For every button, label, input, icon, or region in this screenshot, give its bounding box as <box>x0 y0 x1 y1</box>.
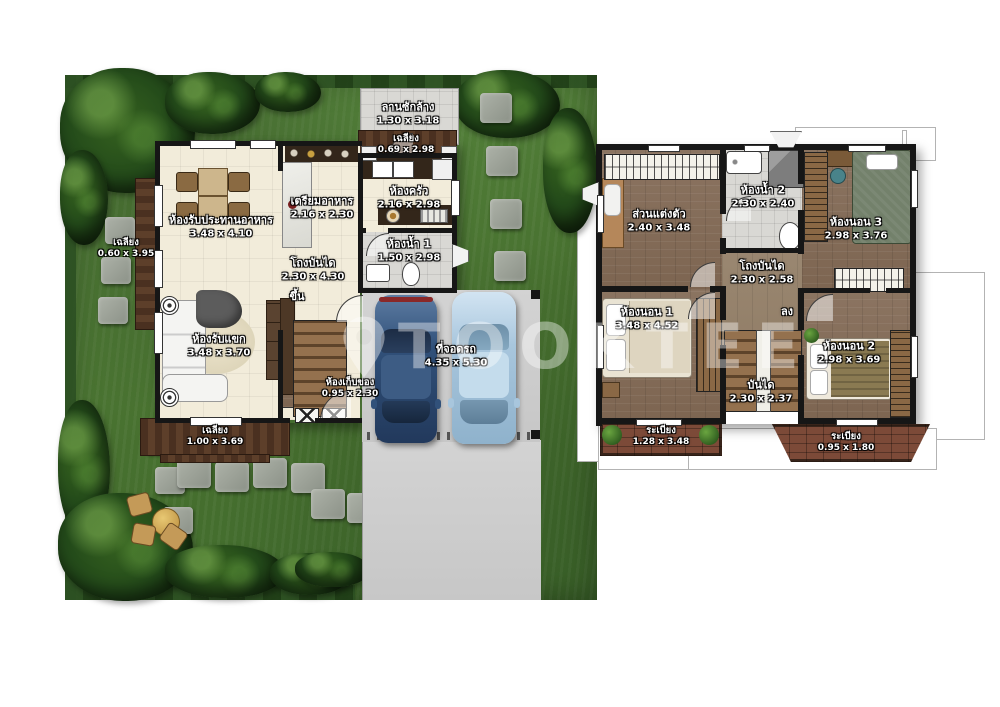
pillow <box>810 370 828 395</box>
label-pantry: เตรียมอาหาร 2.16 x 2.30 <box>291 194 354 221</box>
wardrobe-bedroom2 <box>890 330 912 418</box>
room-name: ห้องเก็บของ <box>326 377 374 388</box>
label-carport: ที่จอดรถ 4.35 x 5.30 <box>425 342 488 369</box>
floor-lamp <box>160 388 179 407</box>
tree <box>255 72 321 112</box>
garden-chair <box>130 522 156 547</box>
wall <box>278 330 283 423</box>
car-taillights <box>379 297 433 302</box>
label-living: ห้องรับแขก 3.48 x 3.70 <box>188 332 251 359</box>
room-dims: 1.50 x 2.98 <box>378 252 441 265</box>
wall <box>358 288 457 293</box>
balcony-shrub <box>699 425 719 445</box>
label-laundry-yard: ลานซักล้าง 1.30 x 3.18 <box>377 100 440 127</box>
room-dims: 0.95 x 2.30 <box>322 389 378 401</box>
dining-chair <box>228 172 250 192</box>
carport-column <box>531 290 540 299</box>
tree <box>165 545 285 598</box>
room-dims: 2.30 x 4.30 <box>282 271 345 284</box>
wall <box>722 248 804 253</box>
room-dims: 3.48 x 3.70 <box>188 347 251 360</box>
sink <box>366 264 390 282</box>
label-balcony-1: ระเบียง 1.28 x 3.48 <box>633 425 689 449</box>
stepping-stone <box>215 462 249 492</box>
desk-chair <box>830 168 846 184</box>
car-mirror <box>435 399 441 409</box>
label-kitchen: ห้องครัว 2.16 x 2.98 <box>378 184 441 211</box>
wall <box>452 153 457 293</box>
label-porch-left: เฉลียง 0.60 x 3.95 <box>98 237 154 261</box>
room-name: โถงบันได <box>290 256 335 269</box>
room-dims: 2.30 x 2.58 <box>731 274 794 287</box>
room-name: ห้องน้ำ 2 <box>741 183 785 196</box>
room-dims: 0.60 x 3.95 <box>98 249 154 261</box>
direction-text: ขึ้น <box>289 290 304 303</box>
room-name: เฉลียง <box>113 237 139 248</box>
label-stair-hall: โถงบันได 2.30 x 4.30 <box>282 256 345 283</box>
wall <box>720 144 726 214</box>
direction-text: ลง <box>781 305 793 318</box>
room-name: ระเบียง <box>831 431 861 442</box>
room-dims: 4.35 x 5.30 <box>425 357 488 370</box>
label-bedroom-3: ห้องนอน 3 2.98 x 3.76 <box>825 215 888 242</box>
wall <box>278 141 283 171</box>
room-name: ระเบียง <box>646 425 676 436</box>
window <box>911 336 918 378</box>
toilet <box>402 262 420 286</box>
label-bedroom-2: ห้องนอน 2 2.98 x 3.69 <box>818 339 881 366</box>
room-name: ห้องรับประทานอาหาร <box>169 213 273 226</box>
roof-outline <box>912 272 985 440</box>
label-stair-hall-2: โถงบันได 2.30 x 2.58 <box>731 259 794 286</box>
room-dims: 1.00 x 3.69 <box>187 437 243 449</box>
wall <box>798 288 870 293</box>
bench-cushion <box>604 184 621 216</box>
room-name: ส่วนแต่งตัว <box>632 207 685 220</box>
label-porch-bottom: เฉลียง 1.00 x 3.69 <box>187 425 243 449</box>
label-bath-2: ห้องน้ำ 2 2.30 x 2.40 <box>732 183 795 210</box>
pillow <box>606 339 626 371</box>
wall <box>798 355 804 420</box>
room-dims: 3.48 x 4.52 <box>616 320 679 333</box>
room-dims: 2.40 x 3.48 <box>628 222 691 235</box>
car-windshield <box>460 400 508 424</box>
wall <box>315 418 362 423</box>
label-bath-1: ห้องน้ำ 1 1.50 x 2.98 <box>378 237 441 264</box>
desk-bedroom3 <box>826 150 854 167</box>
window <box>911 170 918 208</box>
car-windshield <box>382 401 430 423</box>
room-dims: 2.16 x 2.30 <box>291 209 354 222</box>
bathtub <box>726 151 762 174</box>
window <box>154 185 163 227</box>
dining-table <box>198 168 228 196</box>
pantry-counter <box>285 145 358 162</box>
pillow <box>866 154 898 170</box>
wall <box>720 345 726 420</box>
room-name: เตรียมอาหาร <box>291 194 354 207</box>
wall <box>720 290 726 320</box>
room-dims: 2.98 x 3.69 <box>818 354 881 367</box>
window <box>154 250 163 288</box>
wall <box>358 228 363 293</box>
room-dims: 0.69 x 2.98 <box>378 145 434 157</box>
window <box>648 145 680 152</box>
window <box>597 195 604 233</box>
car-rear-window <box>381 329 431 353</box>
porch-step <box>160 454 270 463</box>
dining-chair <box>176 172 198 192</box>
balcony-shrub <box>602 425 622 445</box>
window <box>154 312 163 354</box>
label-balcony-2: ระเบียง 0.95 x 1.80 <box>818 431 874 455</box>
stepping-stone <box>490 199 522 229</box>
stepping-stone <box>480 93 512 123</box>
window <box>836 419 878 426</box>
window <box>190 140 236 149</box>
room-dims: 2.30 x 2.37 <box>730 393 793 406</box>
room-name: ลานซักล้าง <box>382 100 435 113</box>
car-mirror <box>448 398 454 408</box>
wall <box>886 288 916 293</box>
closet-dressing <box>604 154 720 180</box>
label-stairs: บันได 2.30 x 2.37 <box>730 378 793 405</box>
nightstand <box>602 382 620 398</box>
wall <box>596 286 688 292</box>
room-name: ห้องครัว <box>390 184 429 197</box>
room-dims: 2.98 x 3.76 <box>825 230 888 243</box>
room-dims: 2.16 x 2.98 <box>378 199 441 212</box>
label-dressing: ส่วนแต่งตัว 2.40 x 3.48 <box>628 207 691 234</box>
room-dims: 1.30 x 3.18 <box>377 115 440 128</box>
window <box>451 180 460 216</box>
room-dims: 1.28 x 3.48 <box>633 437 689 449</box>
bush <box>295 552 370 587</box>
room-name: เฉลียง <box>202 425 228 436</box>
stepping-stone <box>98 297 128 324</box>
window <box>744 145 770 152</box>
driveway <box>362 440 541 600</box>
tree <box>60 150 108 245</box>
stepping-stone <box>486 146 518 176</box>
car-mirror <box>514 398 520 408</box>
stepping-stone <box>101 257 131 284</box>
room-name: ห้องน้ำ 1 <box>387 237 431 250</box>
room-name: ห้องรับแขก <box>192 332 245 345</box>
window <box>597 325 604 369</box>
label-up: ขึ้น <box>289 290 304 304</box>
label-bedroom-1: ห้องนอน 1 3.48 x 4.52 <box>616 305 679 332</box>
tree <box>543 108 597 233</box>
window <box>848 145 886 152</box>
room-dims: 3.48 x 4.10 <box>169 228 273 241</box>
room-dims: 2.30 x 2.40 <box>732 198 795 211</box>
room-name: โถงบันได <box>739 259 784 272</box>
room-name: เฉลียง <box>393 133 419 144</box>
stepping-stone <box>311 489 345 519</box>
wall <box>798 290 804 330</box>
tree <box>165 72 260 134</box>
room-name: ห้องนอน 2 <box>823 339 875 352</box>
room-name: บันได <box>747 378 774 391</box>
window <box>250 140 276 149</box>
label-down: ลง <box>781 305 793 319</box>
room-name: ห้องนอน 1 <box>621 305 673 318</box>
floorplan-canvas: ลานซักล้าง 1.30 x 3.18 เฉลียง 0.69 x 2.9… <box>0 0 1000 707</box>
wall <box>388 228 457 233</box>
room-name: ห้องนอน 3 <box>830 215 882 228</box>
wall <box>798 144 804 184</box>
label-dining: ห้องรับประทานอาหาร 3.48 x 4.10 <box>169 213 273 240</box>
room-name: ที่จอดรถ <box>436 342 476 355</box>
carport-column <box>531 430 540 439</box>
car-roof <box>381 355 431 399</box>
wall <box>710 286 726 292</box>
label-storage: ห้องเก็บของ 0.95 x 2.30 <box>322 377 378 401</box>
double-sink <box>372 161 414 178</box>
stepping-stone <box>494 251 526 281</box>
room-dims: 0.95 x 1.80 <box>818 443 874 455</box>
label-porch-top: เฉลียง 0.69 x 2.98 <box>378 133 434 157</box>
wall <box>358 153 363 231</box>
